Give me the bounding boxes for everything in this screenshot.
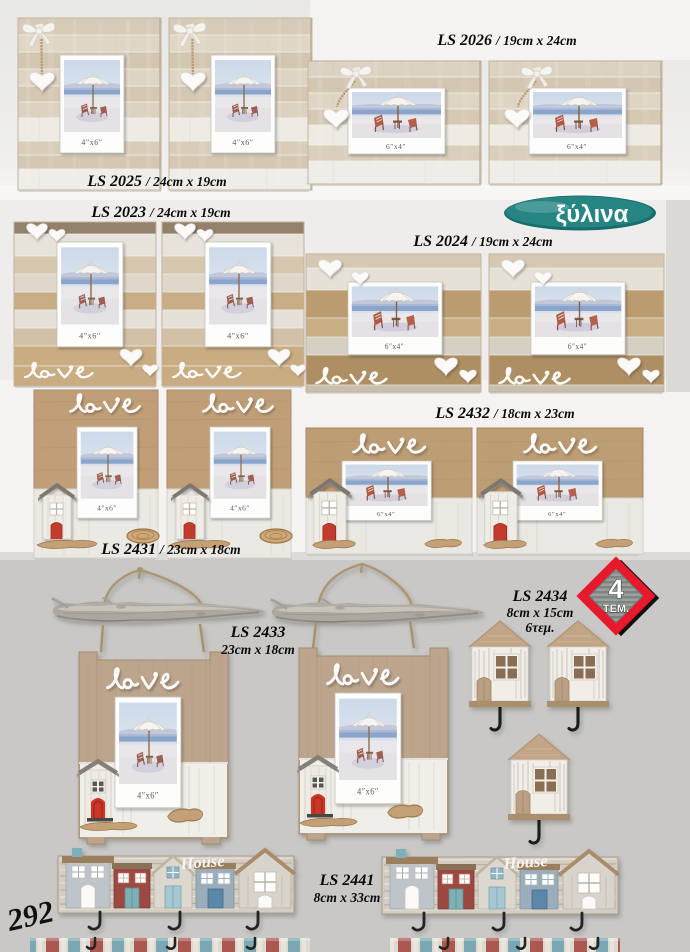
svg-text:ξύλινα: ξύλινα [556, 201, 629, 228]
svg-text:LS 2433: LS 2433 [230, 624, 286, 641]
svg-text:LS 2441: LS 2441 [319, 872, 375, 889]
svg-text:8cm x 15cm: 8cm x 15cm [507, 605, 574, 620]
svg-text:LS 2434: LS 2434 [512, 588, 568, 605]
svg-text:House: House [502, 851, 548, 873]
svg-text:23cm x 18cm: 23cm x 18cm [220, 642, 295, 657]
svg-text:4: 4 [608, 574, 623, 604]
svg-text:LS 2024 / 19cm x 24cm: LS 2024 / 19cm x 24cm [412, 233, 552, 250]
svg-text:LS 2431 / 23cm x 18cm: LS 2431 / 23cm x 18cm [100, 541, 240, 558]
svg-text:House: House [179, 851, 225, 873]
svg-text:ΤΕΜ.: ΤΕΜ. [603, 603, 629, 615]
svg-text:LS 2026 / 19cm x 24cm: LS 2026 / 19cm x 24cm [436, 32, 576, 49]
svg-text:6τεμ.: 6τεμ. [525, 620, 554, 635]
svg-text:LS 2025 / 24cm x 19cm: LS 2025 / 24cm x 19cm [86, 173, 226, 190]
svg-text:8cm x 33cm: 8cm x 33cm [314, 890, 381, 905]
svg-text:LS 2023 / 24cm x 19cm: LS 2023 / 24cm x 19cm [90, 204, 230, 221]
svg-text:LS 2432 / 18cm x 23cm: LS 2432 / 18cm x 23cm [434, 405, 574, 422]
